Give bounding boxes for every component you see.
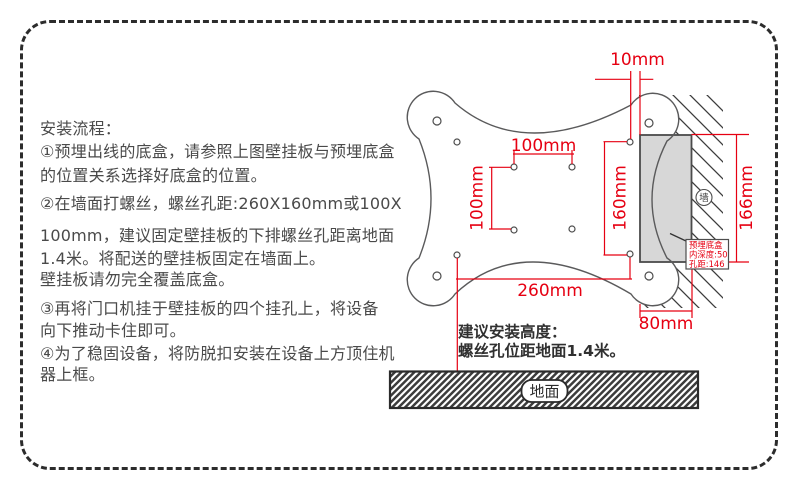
vesa-screw-hole bbox=[569, 164, 575, 170]
corner-hang-hole bbox=[433, 272, 441, 280]
outer-screw-hole bbox=[454, 139, 460, 145]
corner-hang-hole bbox=[645, 119, 653, 127]
manual-page: 安装流程： ①预埋出线的底盒，请参照上图壁挂板与预埋底盒 的位置关系选择好底盒的… bbox=[0, 0, 800, 492]
dim-label-80mm: 80mm bbox=[639, 314, 694, 334]
outer-screw-hole bbox=[454, 252, 460, 258]
embedded-outlet-box bbox=[640, 135, 692, 262]
outer-screw-hole bbox=[627, 139, 633, 145]
dim-label-166mm: 166mm bbox=[737, 165, 757, 231]
callout-line1: 预埋底盒 bbox=[689, 240, 723, 250]
dim-label-160mm: 160mm bbox=[611, 165, 631, 231]
ground-label: 地面 bbox=[529, 383, 559, 401]
callout-line2: 内深度:50 bbox=[689, 250, 728, 260]
vesa-screw-hole bbox=[511, 164, 517, 170]
wall-plate-installation-diagram: 10mm 100mm 100mm 160mm 260mm 80mm 166mm … bbox=[0, 0, 800, 492]
dim-label-10mm: 10mm bbox=[610, 50, 665, 70]
dim-label-100mm-width: 100mm bbox=[511, 136, 577, 156]
dim-label-260mm: 260mm bbox=[517, 281, 583, 301]
vesa-screw-hole bbox=[511, 227, 517, 233]
dim-label-100mm-height: 100mm bbox=[468, 165, 488, 231]
wall-plate-body bbox=[407, 91, 678, 305]
corner-hang-hole bbox=[433, 117, 441, 125]
vesa-screw-hole bbox=[569, 226, 575, 232]
callout-line3: 孔距:146 bbox=[689, 259, 725, 269]
outer-screw-hole bbox=[627, 251, 633, 257]
corner-hang-hole bbox=[645, 272, 653, 280]
wall-marker-label: 墙 bbox=[699, 192, 709, 204]
